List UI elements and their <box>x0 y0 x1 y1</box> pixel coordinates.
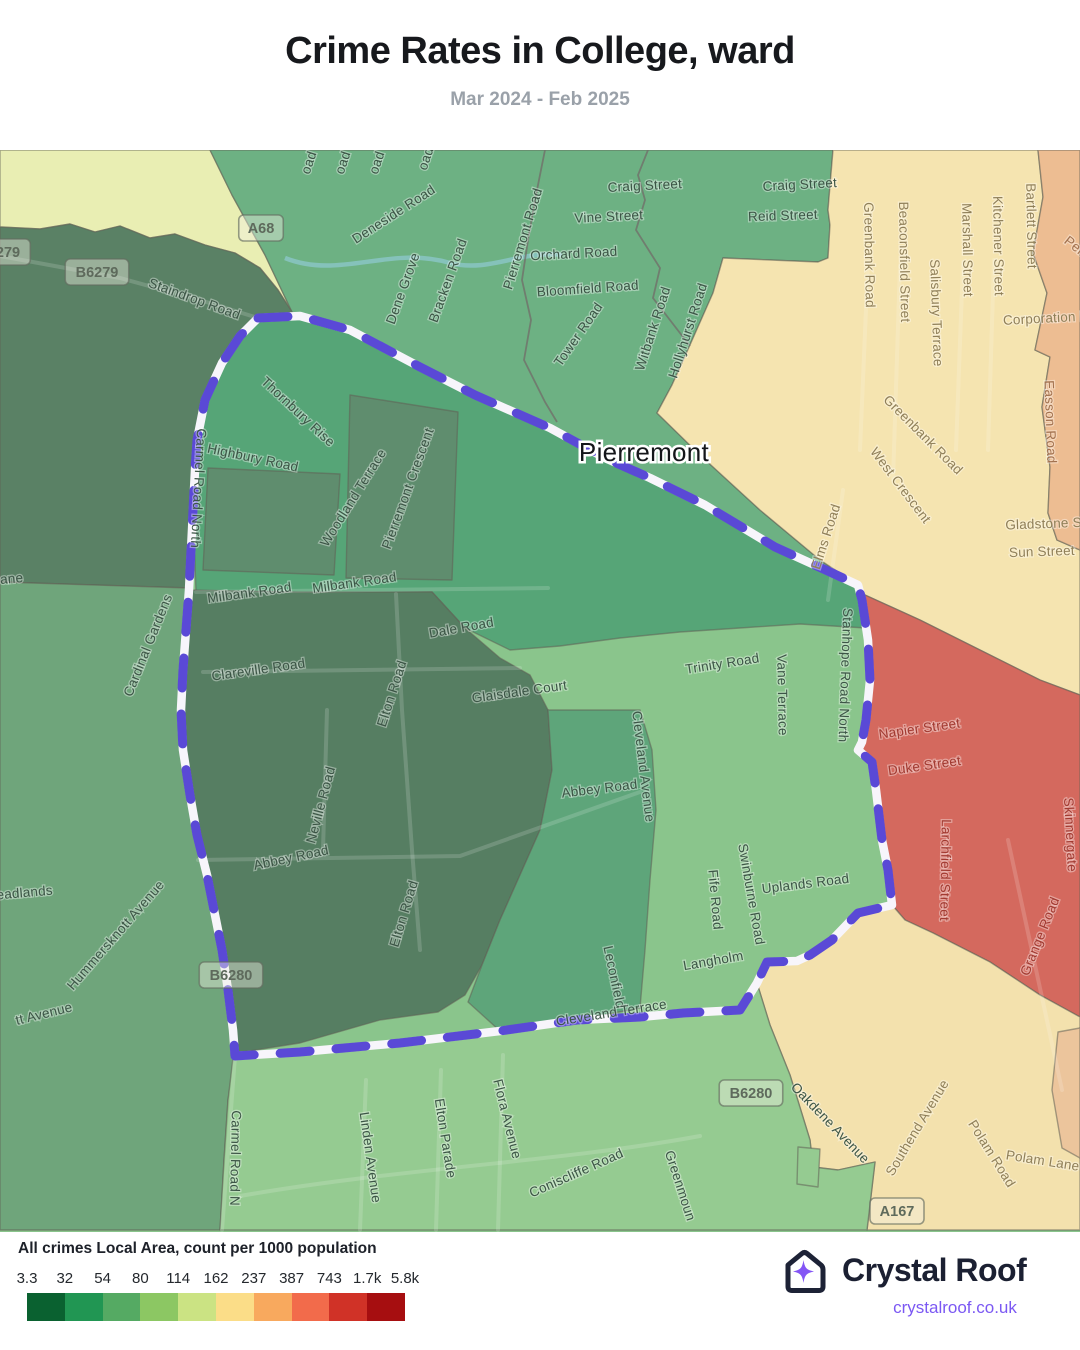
page-title: Crime Rates in College, ward <box>0 0 1080 73</box>
footer: All crimes Local Area, count per 1000 po… <box>0 1232 1080 1350</box>
road-badge-text: 279 <box>0 245 20 261</box>
road-badge-text: B6280 <box>730 1086 773 1102</box>
street-label: Gladstone Str <box>1005 515 1080 533</box>
crime-choropleth-map[interactable]: 279B6279A68B6280B6280A167Staindrop RoadD… <box>0 150 1080 1232</box>
legend-label: 80 <box>132 1270 149 1287</box>
legend-swatch <box>367 1293 405 1321</box>
legend-swatch <box>329 1293 367 1321</box>
street-label: Carmel Road N <box>227 1110 244 1206</box>
brand-name: Crystal Roof <box>842 1252 1026 1289</box>
street-label: Bartlett Street <box>1023 183 1039 269</box>
legend-swatch <box>254 1293 292 1321</box>
road-badge-text: A68 <box>248 221 275 237</box>
legend-label: 32 <box>56 1270 73 1287</box>
legend-label: 3.3 <box>17 1270 38 1287</box>
road-badge: B6280 <box>719 1080 783 1106</box>
legend-swatch <box>65 1293 103 1321</box>
legend-label: 54 <box>94 1270 111 1287</box>
street-label: Beaconsfield Street <box>896 201 913 322</box>
street-label: Marshall Street <box>959 203 976 297</box>
map-header: Crime Rates in College, ward Mar 2024 - … <box>0 0 1080 150</box>
legend-swatch <box>27 1293 65 1321</box>
brand-block: Crystal Roof crystalroof.co.uk <box>770 1232 1070 1350</box>
legend-label: 5.8k <box>391 1270 419 1287</box>
ward-dark-patch-a <box>203 468 340 575</box>
legend-color-bar <box>27 1293 405 1321</box>
legend-swatch <box>103 1293 141 1321</box>
legend-label: 387 <box>279 1270 304 1287</box>
crystal-roof-logo-icon <box>778 1244 830 1296</box>
street-label: Sun Street <box>1009 543 1075 560</box>
road-badge-text: B6280 <box>210 968 253 984</box>
legend-label: 1.7k <box>353 1270 381 1287</box>
area-green-notch <box>797 1147 820 1187</box>
legend-label: 237 <box>241 1270 266 1287</box>
legend-label: 743 <box>317 1270 342 1287</box>
legend-swatch <box>292 1293 330 1321</box>
street-label: Larchfield Street <box>937 819 954 921</box>
legend-swatch <box>178 1293 216 1321</box>
map-canvas: 279B6279A68B6280B6280A167Staindrop RoadD… <box>0 150 1080 1232</box>
street-label: Greenbank Road <box>861 202 878 308</box>
brand-url-link[interactable]: crystalroof.co.uk <box>840 1298 1070 1318</box>
legend-label: 162 <box>203 1270 228 1287</box>
legend-swatch <box>140 1293 178 1321</box>
road-badge-text: B6279 <box>76 265 119 281</box>
place-label-pierremont: Pierremont <box>579 437 710 467</box>
road-badge: A68 <box>239 215 284 241</box>
legend-swatch <box>216 1293 254 1321</box>
legend-label: 114 <box>166 1270 190 1287</box>
legend-title: All crimes Local Area, count per 1000 po… <box>18 1240 377 1258</box>
street-label: Reid Street <box>748 207 818 224</box>
date-range: Mar 2024 - Feb 2025 <box>0 73 1080 111</box>
sparkle-star-icon <box>793 1260 814 1283</box>
page: Crime Rates in College, ward Mar 2024 - … <box>0 0 1080 1350</box>
street-label: Kitchener Street <box>990 196 1007 296</box>
street-label: Easson Road <box>1042 380 1060 464</box>
street-label: ane <box>0 570 24 587</box>
road-badge: A167 <box>870 1198 924 1224</box>
road-badge: B6279 <box>65 259 129 285</box>
road-badge: B6280 <box>199 962 263 988</box>
road-badge-text: A167 <box>880 1204 915 1220</box>
street-label: Vane Terrace <box>774 654 790 736</box>
legend-scale-labels: 3.33254801141622373877431.7k5.8k <box>0 1270 440 1288</box>
road-badge: 279 <box>0 239 30 265</box>
